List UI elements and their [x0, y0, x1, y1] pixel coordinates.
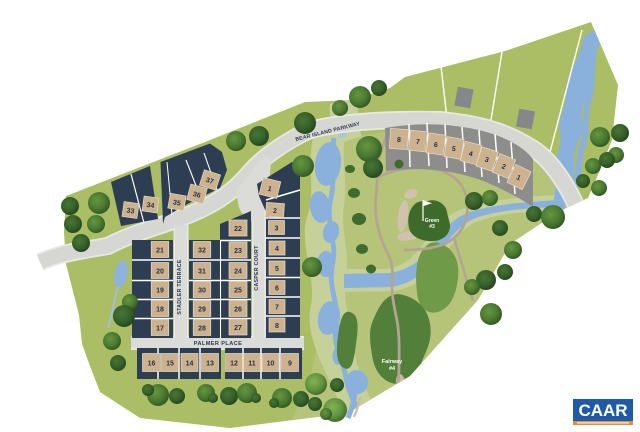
- svg-text:26: 26: [234, 307, 242, 314]
- svg-text:14: 14: [186, 361, 194, 368]
- svg-text:STADLER TERRACE: STADLER TERRACE: [177, 259, 183, 314]
- svg-text:4: 4: [275, 246, 279, 253]
- svg-text:21: 21: [156, 248, 164, 255]
- svg-text:PALMER PLACE: PALMER PLACE: [194, 341, 243, 347]
- svg-text:28: 28: [198, 326, 206, 333]
- svg-text:34: 34: [146, 202, 155, 210]
- svg-text:33: 33: [126, 207, 135, 215]
- svg-text:19: 19: [156, 288, 164, 295]
- svg-text:20: 20: [156, 269, 164, 276]
- svg-text:9: 9: [288, 361, 292, 368]
- svg-text:17: 17: [156, 326, 164, 333]
- svg-text:5: 5: [275, 266, 279, 273]
- svg-text:11: 11: [248, 361, 256, 368]
- svg-text:24: 24: [234, 269, 242, 276]
- svg-text:Fairway: Fairway: [382, 359, 403, 365]
- svg-text:22: 22: [234, 226, 242, 233]
- svg-text:#4: #4: [389, 366, 396, 372]
- svg-text:23: 23: [234, 248, 242, 255]
- svg-text:12: 12: [230, 361, 238, 368]
- svg-text:30: 30: [198, 288, 206, 295]
- svg-text:2: 2: [273, 208, 277, 215]
- svg-text:CAAR: CAAR: [578, 401, 627, 420]
- svg-text:8: 8: [275, 323, 279, 330]
- svg-text:8: 8: [397, 137, 401, 144]
- svg-text:3: 3: [275, 226, 279, 233]
- svg-text:15: 15: [166, 361, 174, 368]
- svg-text:13: 13: [206, 361, 214, 368]
- svg-text:18: 18: [156, 307, 164, 314]
- svg-text:35: 35: [172, 199, 181, 207]
- svg-text:CASPER COURT: CASPER COURT: [254, 245, 260, 291]
- svg-text:#3: #3: [429, 224, 435, 230]
- svg-text:32: 32: [198, 248, 206, 255]
- svg-text:10: 10: [267, 361, 275, 368]
- svg-text:6: 6: [275, 286, 279, 293]
- svg-text:7: 7: [275, 305, 279, 312]
- svg-text:27: 27: [234, 325, 242, 332]
- svg-text:25: 25: [234, 288, 242, 295]
- svg-text:31: 31: [198, 269, 206, 276]
- svg-text:29: 29: [198, 307, 206, 314]
- svg-text:16: 16: [148, 361, 156, 368]
